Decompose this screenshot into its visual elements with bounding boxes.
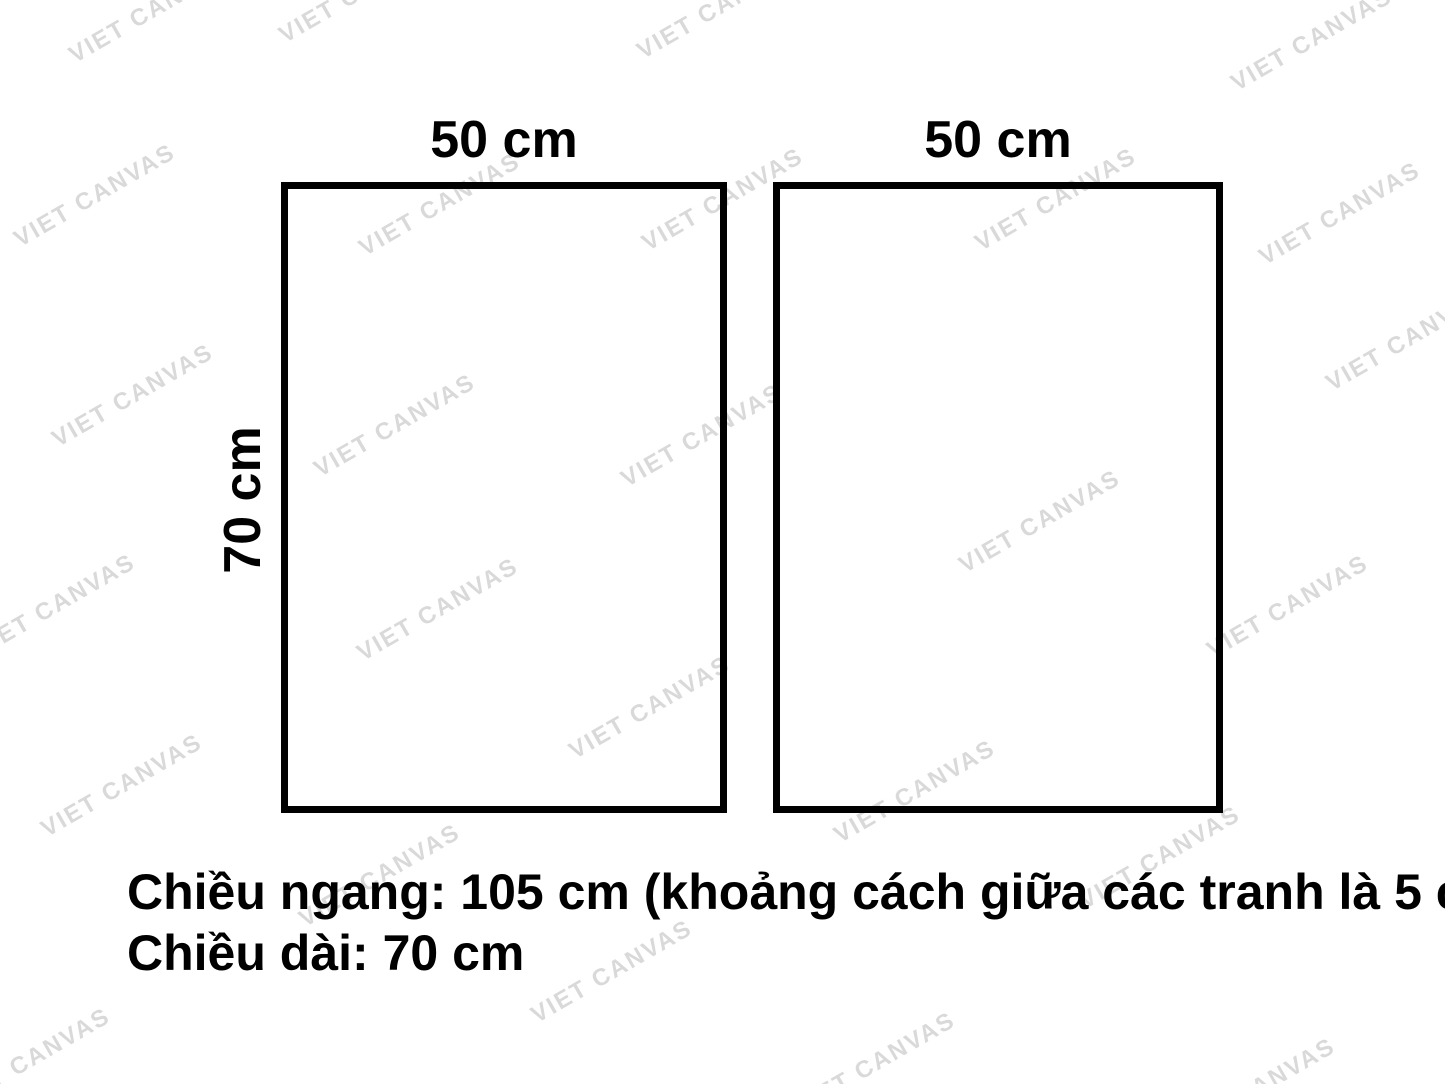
dimension-caption: Chiều ngang: 105 cm (khoảng cách giữa cá… — [127, 862, 1445, 984]
watermark-text: VIET CANVAS — [632, 0, 803, 66]
caption-horizontal-dimension: Chiều ngang: 105 cm (khoảng cách giữa cá… — [127, 862, 1445, 923]
panel-height-label: 70 cm — [213, 426, 273, 573]
right-panel-width-label: 50 cm — [773, 110, 1223, 170]
watermark-text: VIET CANVAS — [36, 728, 207, 843]
watermark-text: VIET CANVAS — [1202, 549, 1373, 664]
right-canvas-panel — [773, 182, 1223, 813]
canvas-size-diagram: VIET CANVASVIET CANVASVIET CANVASVIET CA… — [0, 0, 1445, 1084]
caption-vertical-dimension: Chiều dài: 70 cm — [127, 923, 1445, 984]
watermark-text: VIET CANVAS — [789, 1006, 960, 1084]
watermark-text: VIET CANVAS — [47, 338, 218, 453]
left-panel-width-label: 50 cm — [281, 110, 727, 170]
watermark-text: VIET CANVAS — [1254, 156, 1425, 271]
watermark-text: VIET CANVAS — [9, 138, 180, 253]
watermark-text: VIET CANVAS — [274, 0, 445, 50]
left-canvas-panel — [281, 182, 727, 813]
watermark-text: VIET CANVAS — [1321, 282, 1445, 397]
watermark-text: VIET CANVAS — [0, 548, 141, 663]
watermark-text: VIET CANVAS — [64, 0, 235, 70]
watermark-text: VIET CANVAS — [0, 1002, 116, 1084]
watermark-text: VIET CANVAS — [1226, 0, 1397, 98]
watermark-text: VIET CANVAS — [1169, 1032, 1340, 1084]
